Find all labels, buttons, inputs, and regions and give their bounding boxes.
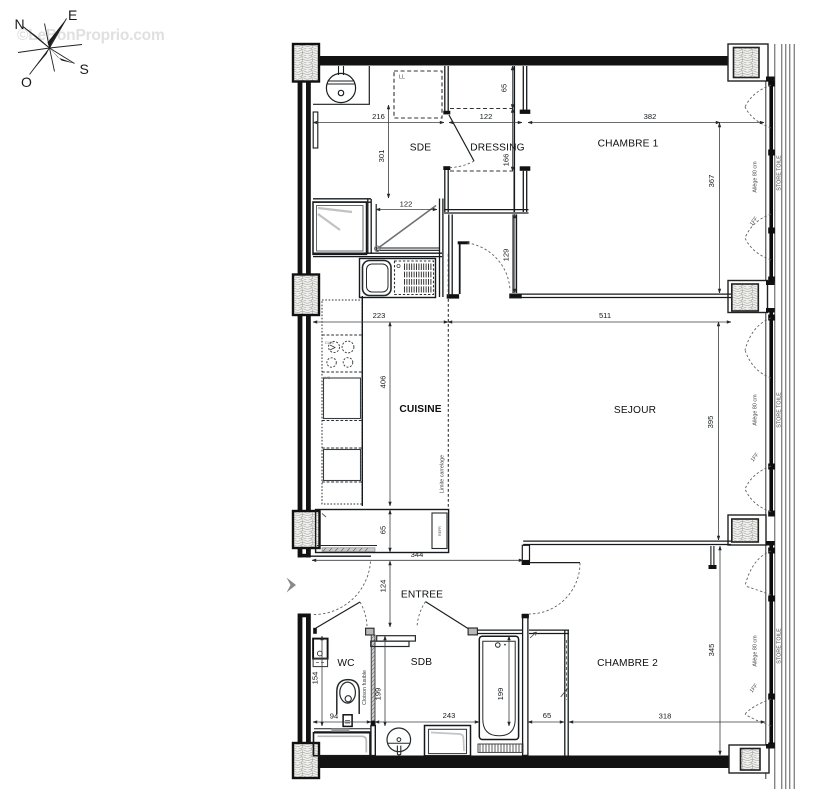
- svg-text:DRESSING: DRESSING: [470, 143, 524, 154]
- svg-text:216: 216: [372, 112, 385, 121]
- svg-text:SEJOUR: SEJOUR: [614, 405, 656, 416]
- svg-text:94: 94: [330, 712, 338, 721]
- svg-text:N: N: [15, 16, 25, 32]
- svg-text:345: 345: [707, 644, 716, 657]
- svg-text:E: E: [68, 7, 77, 23]
- svg-text:Allège 80 cm: Allège 80 cm: [753, 394, 759, 426]
- svg-text:Allège 80 cm: Allège 80 cm: [753, 635, 759, 667]
- svg-text:129: 129: [501, 249, 510, 262]
- svg-text:S: S: [80, 61, 89, 77]
- svg-text:154: 154: [310, 672, 319, 685]
- svg-text:122: 122: [400, 200, 413, 209]
- svg-text:124: 124: [379, 580, 388, 593]
- svg-text:O: O: [21, 74, 32, 90]
- svg-text:WC: WC: [337, 658, 354, 669]
- svg-text:CHAMBRE 2: CHAMBRE 2: [597, 658, 658, 669]
- svg-text:395: 395: [706, 416, 715, 429]
- svg-text:318: 318: [659, 712, 672, 721]
- svg-text:Allège 80 cm: Allège 80 cm: [753, 161, 759, 193]
- svg-text:CUISINE: CUISINE: [399, 404, 441, 415]
- svg-text:Cloison fusible: Cloison fusible: [362, 670, 368, 705]
- svg-text:STORE TOILE: STORE TOILE: [777, 628, 783, 664]
- svg-text:CUIS: CUIS: [325, 341, 334, 345]
- svg-text:STORE TOILE: STORE TOILE: [777, 155, 783, 191]
- svg-text:ENTREE: ENTREE: [401, 590, 443, 601]
- svg-text:382: 382: [644, 112, 657, 121]
- svg-text:Limite carrelage: Limite carrelage: [440, 455, 446, 493]
- svg-text:SDE: SDE: [410, 143, 431, 154]
- svg-text:199: 199: [496, 688, 505, 701]
- svg-text:STORE TOILE: STORE TOILE: [777, 392, 783, 428]
- svg-text:367: 367: [707, 175, 716, 188]
- svg-text:REFR: REFR: [438, 526, 442, 536]
- svg-text:301: 301: [377, 150, 386, 163]
- svg-text:CHAMBRE 1: CHAMBRE 1: [598, 138, 659, 149]
- svg-text:65: 65: [379, 526, 388, 534]
- svg-text:199: 199: [374, 688, 383, 701]
- svg-text:243: 243: [443, 711, 456, 720]
- svg-text:©LeBonProprio.com: ©LeBonProprio.com: [17, 27, 165, 44]
- svg-text:223: 223: [373, 311, 386, 320]
- svg-text:65: 65: [500, 84, 509, 92]
- svg-text:166: 166: [501, 154, 510, 167]
- svg-text:511: 511: [599, 311, 611, 320]
- svg-text:406: 406: [379, 376, 388, 389]
- svg-text:LL: LL: [399, 75, 405, 81]
- svg-text:344: 344: [411, 550, 424, 559]
- svg-text:SDB: SDB: [411, 657, 432, 668]
- svg-text:122: 122: [480, 112, 493, 121]
- svg-text:65: 65: [543, 711, 551, 720]
